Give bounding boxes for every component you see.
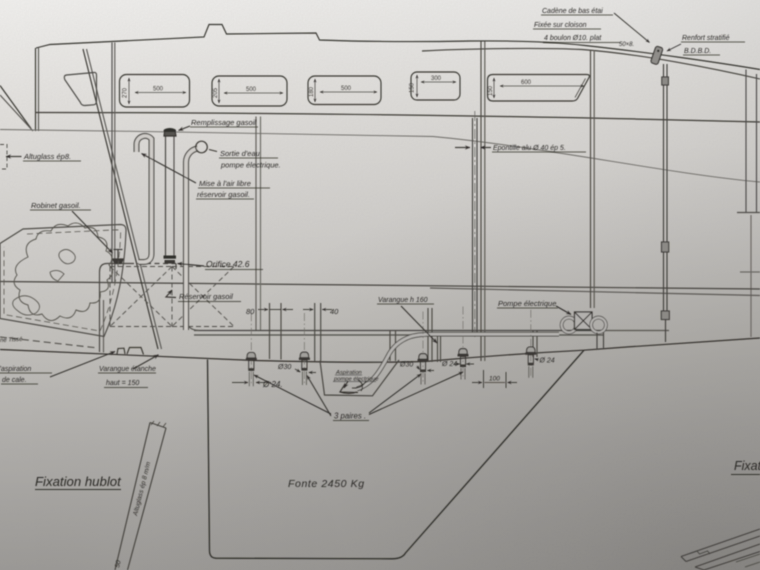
svg-text:Epontille alu Ø 40 ép 5.: Epontille alu Ø 40 ép 5. [493, 145, 566, 152]
svg-text:Orifice 42.6: Orifice 42.6 [206, 259, 250, 269]
svg-text:Ø30: Ø30 [277, 364, 291, 371]
svg-text:Fixée sur cloison: Fixée sur cloison [534, 22, 587, 29]
svg-text:Remplissage gasoil: Remplissage gasoil [191, 118, 256, 127]
svg-text:Mise à l'air libre: Mise à l'air libre [199, 179, 251, 188]
svg-text:Ø30: Ø30 [399, 362, 413, 369]
svg-text:4 boulon Ø10. plat: 4 boulon Ø10. plat [544, 35, 602, 42]
svg-text:50×8.: 50×8. [619, 42, 634, 48]
svg-text:100: 100 [489, 376, 500, 383]
svg-text:500: 500 [153, 87, 164, 93]
svg-text:pompe électrique.: pompe électrique. [220, 161, 281, 170]
svg-text:180: 180 [309, 86, 315, 97]
svg-text:Pompe électrique: Pompe électrique [498, 299, 556, 308]
svg-text:Ø 24: Ø 24 [539, 358, 555, 365]
svg-text:150: 150 [488, 85, 494, 96]
svg-text:Fixation hublot: Fixation hublot [35, 474, 122, 489]
svg-text:Ø 24.: Ø 24. [262, 380, 283, 389]
svg-text:3 paires .: 3 paires . [334, 412, 366, 421]
svg-text:500: 500 [341, 86, 352, 92]
svg-text:de cale.: de cale. [2, 377, 27, 384]
svg-text:40: 40 [330, 307, 339, 316]
svg-text:300: 300 [431, 76, 442, 82]
svg-text:80: 80 [246, 307, 255, 316]
svg-text:Robinet gasoil.: Robinet gasoil. [31, 201, 81, 210]
svg-text:500: 500 [246, 87, 257, 93]
svg-text:150: 150 [410, 82, 416, 93]
svg-text:Sortie d'eau: Sortie d'eau [220, 149, 261, 158]
svg-text:Cadène de bas étai: Cadène de bas étai [542, 8, 603, 15]
svg-text:Réservoir gasoil: Réservoir gasoil [179, 292, 233, 301]
svg-text:haut = 150: haut = 150 [106, 380, 139, 387]
svg-text:réservoir gasoil.: réservoir gasoil. [197, 190, 250, 199]
svg-text:Varangue étanche: Varangue étanche [99, 366, 156, 373]
svg-text:270: 270 [123, 87, 129, 98]
svg-text:B.D.B.D.: B.D.B.D. [684, 48, 711, 55]
svg-text:Varangue h 160: Varangue h 160 [378, 297, 428, 304]
svg-text:205: 205 [213, 87, 219, 98]
svg-text:ne d'aspiration: ne d'aspiration [0, 366, 31, 373]
svg-text:Fixati: Fixati [734, 459, 760, 473]
svg-text:ne Tissé: ne Tissé [0, 337, 23, 344]
svg-text:600: 600 [521, 80, 532, 86]
svg-text:Renfort stratifié: Renfort stratifié [682, 35, 730, 42]
svg-text:Fonte 2450 Kg: Fonte 2450 Kg [288, 478, 365, 490]
svg-text:Altuglass ép8.: Altuglass ép8. [23, 152, 71, 161]
svg-text:Ø 24: Ø 24 [441, 361, 457, 368]
